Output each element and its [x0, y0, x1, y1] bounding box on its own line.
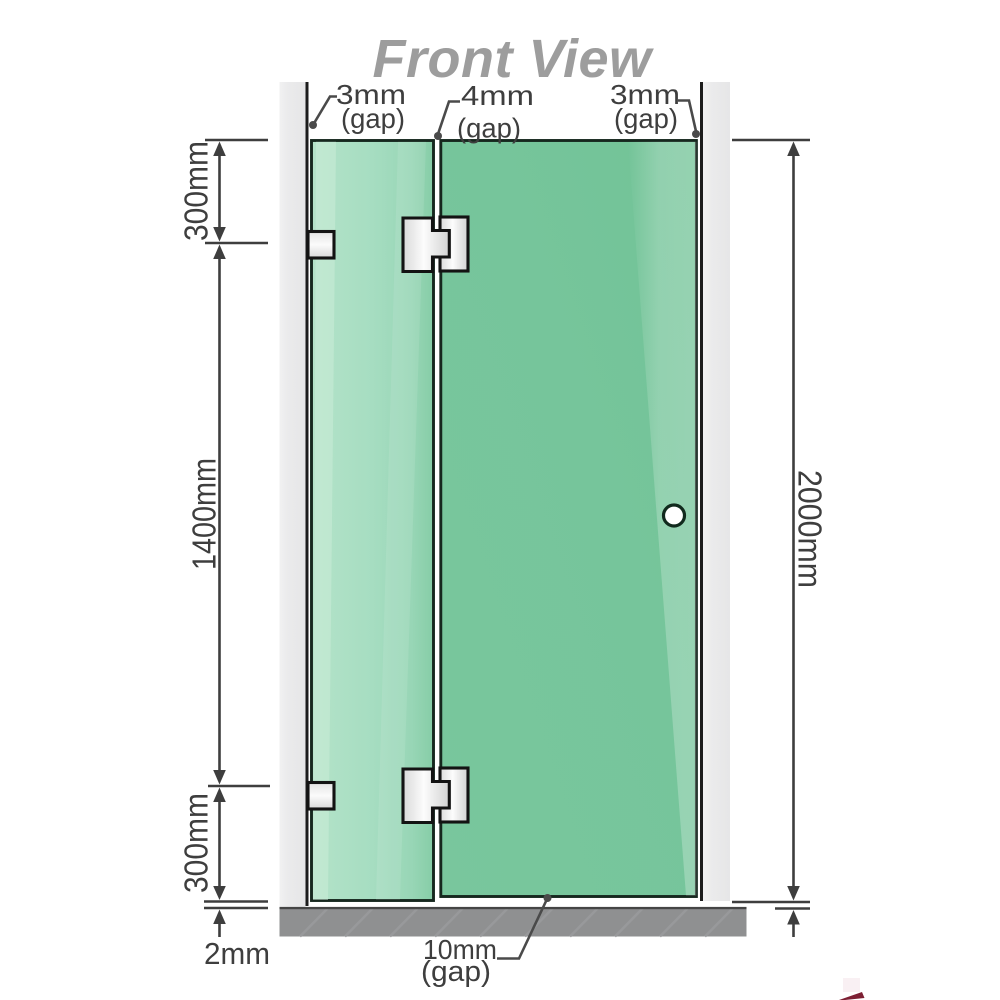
svg-text:(gap): (gap)	[341, 103, 405, 134]
svg-text:(gap): (gap)	[614, 103, 678, 134]
svg-text:(gap): (gap)	[457, 113, 521, 144]
svg-text:2mm: 2mm	[204, 936, 270, 971]
svg-text:300mm: 300mm	[178, 141, 215, 241]
svg-text:(gap): (gap)	[421, 956, 491, 988]
svg-text:300mm: 300mm	[178, 793, 215, 893]
svg-text:1400mm: 1400mm	[186, 458, 223, 570]
svg-text:4mm: 4mm	[461, 80, 534, 111]
svg-text:2000mm: 2000mm	[792, 470, 829, 588]
